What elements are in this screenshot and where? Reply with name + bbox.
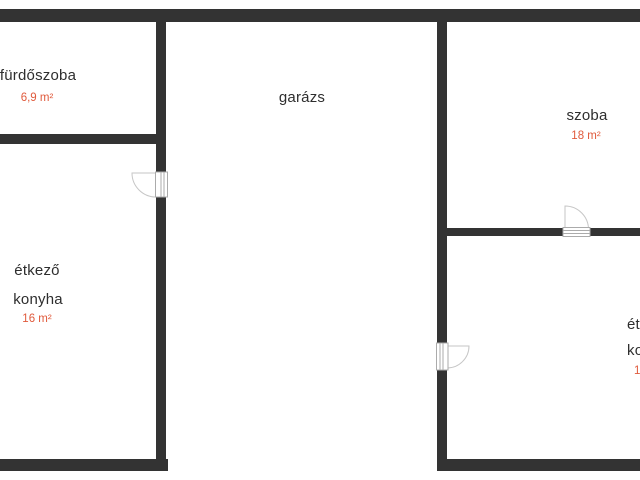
floor-plan-drawing bbox=[0, 0, 640, 480]
right-kitchen-door-frame bbox=[437, 343, 449, 370]
room-label-bedroom: szoba bbox=[566, 108, 607, 124]
wall-bottom-right-exterior bbox=[437, 459, 640, 471]
room-label-right-kitchen-line1-partial: ét bbox=[627, 317, 640, 333]
bedroom-door-frame bbox=[563, 228, 590, 237]
right-kitchen-door-swing bbox=[447, 346, 469, 368]
room-label-kitchen-line1: étkező bbox=[14, 263, 59, 279]
wall-right-vertical-lower bbox=[437, 370, 447, 471]
floor-plan: fürdőszoba 6,9 m² garázs szoba 18 m² étk… bbox=[0, 0, 640, 480]
wall-bottom-left-exterior bbox=[0, 459, 168, 471]
room-label-kitchen-line2: konyha bbox=[13, 292, 63, 308]
wall-right-vertical-upper bbox=[437, 9, 447, 343]
kitchen-door-swing bbox=[132, 173, 156, 197]
room-area-bathroom: 6,9 m² bbox=[21, 92, 54, 104]
wall-top-exterior bbox=[0, 9, 640, 22]
room-label-bathroom: fürdőszoba bbox=[0, 68, 76, 84]
bedroom-door-swing bbox=[565, 206, 589, 230]
room-area-right-kitchen-partial: 1 bbox=[634, 365, 640, 377]
room-area-bedroom: 18 m² bbox=[571, 130, 600, 142]
wall-bedroom-divider-left bbox=[447, 228, 563, 236]
wall-bathroom-divider bbox=[0, 134, 156, 144]
wall-left-vertical-lower bbox=[156, 197, 166, 471]
wall-left-vertical-upper bbox=[156, 9, 166, 172]
room-area-kitchen: 16 m² bbox=[22, 313, 51, 325]
room-label-right-kitchen-line2-partial: ko bbox=[627, 343, 640, 359]
room-label-garage: garázs bbox=[279, 90, 325, 106]
wall-bedroom-divider-right bbox=[590, 228, 640, 236]
